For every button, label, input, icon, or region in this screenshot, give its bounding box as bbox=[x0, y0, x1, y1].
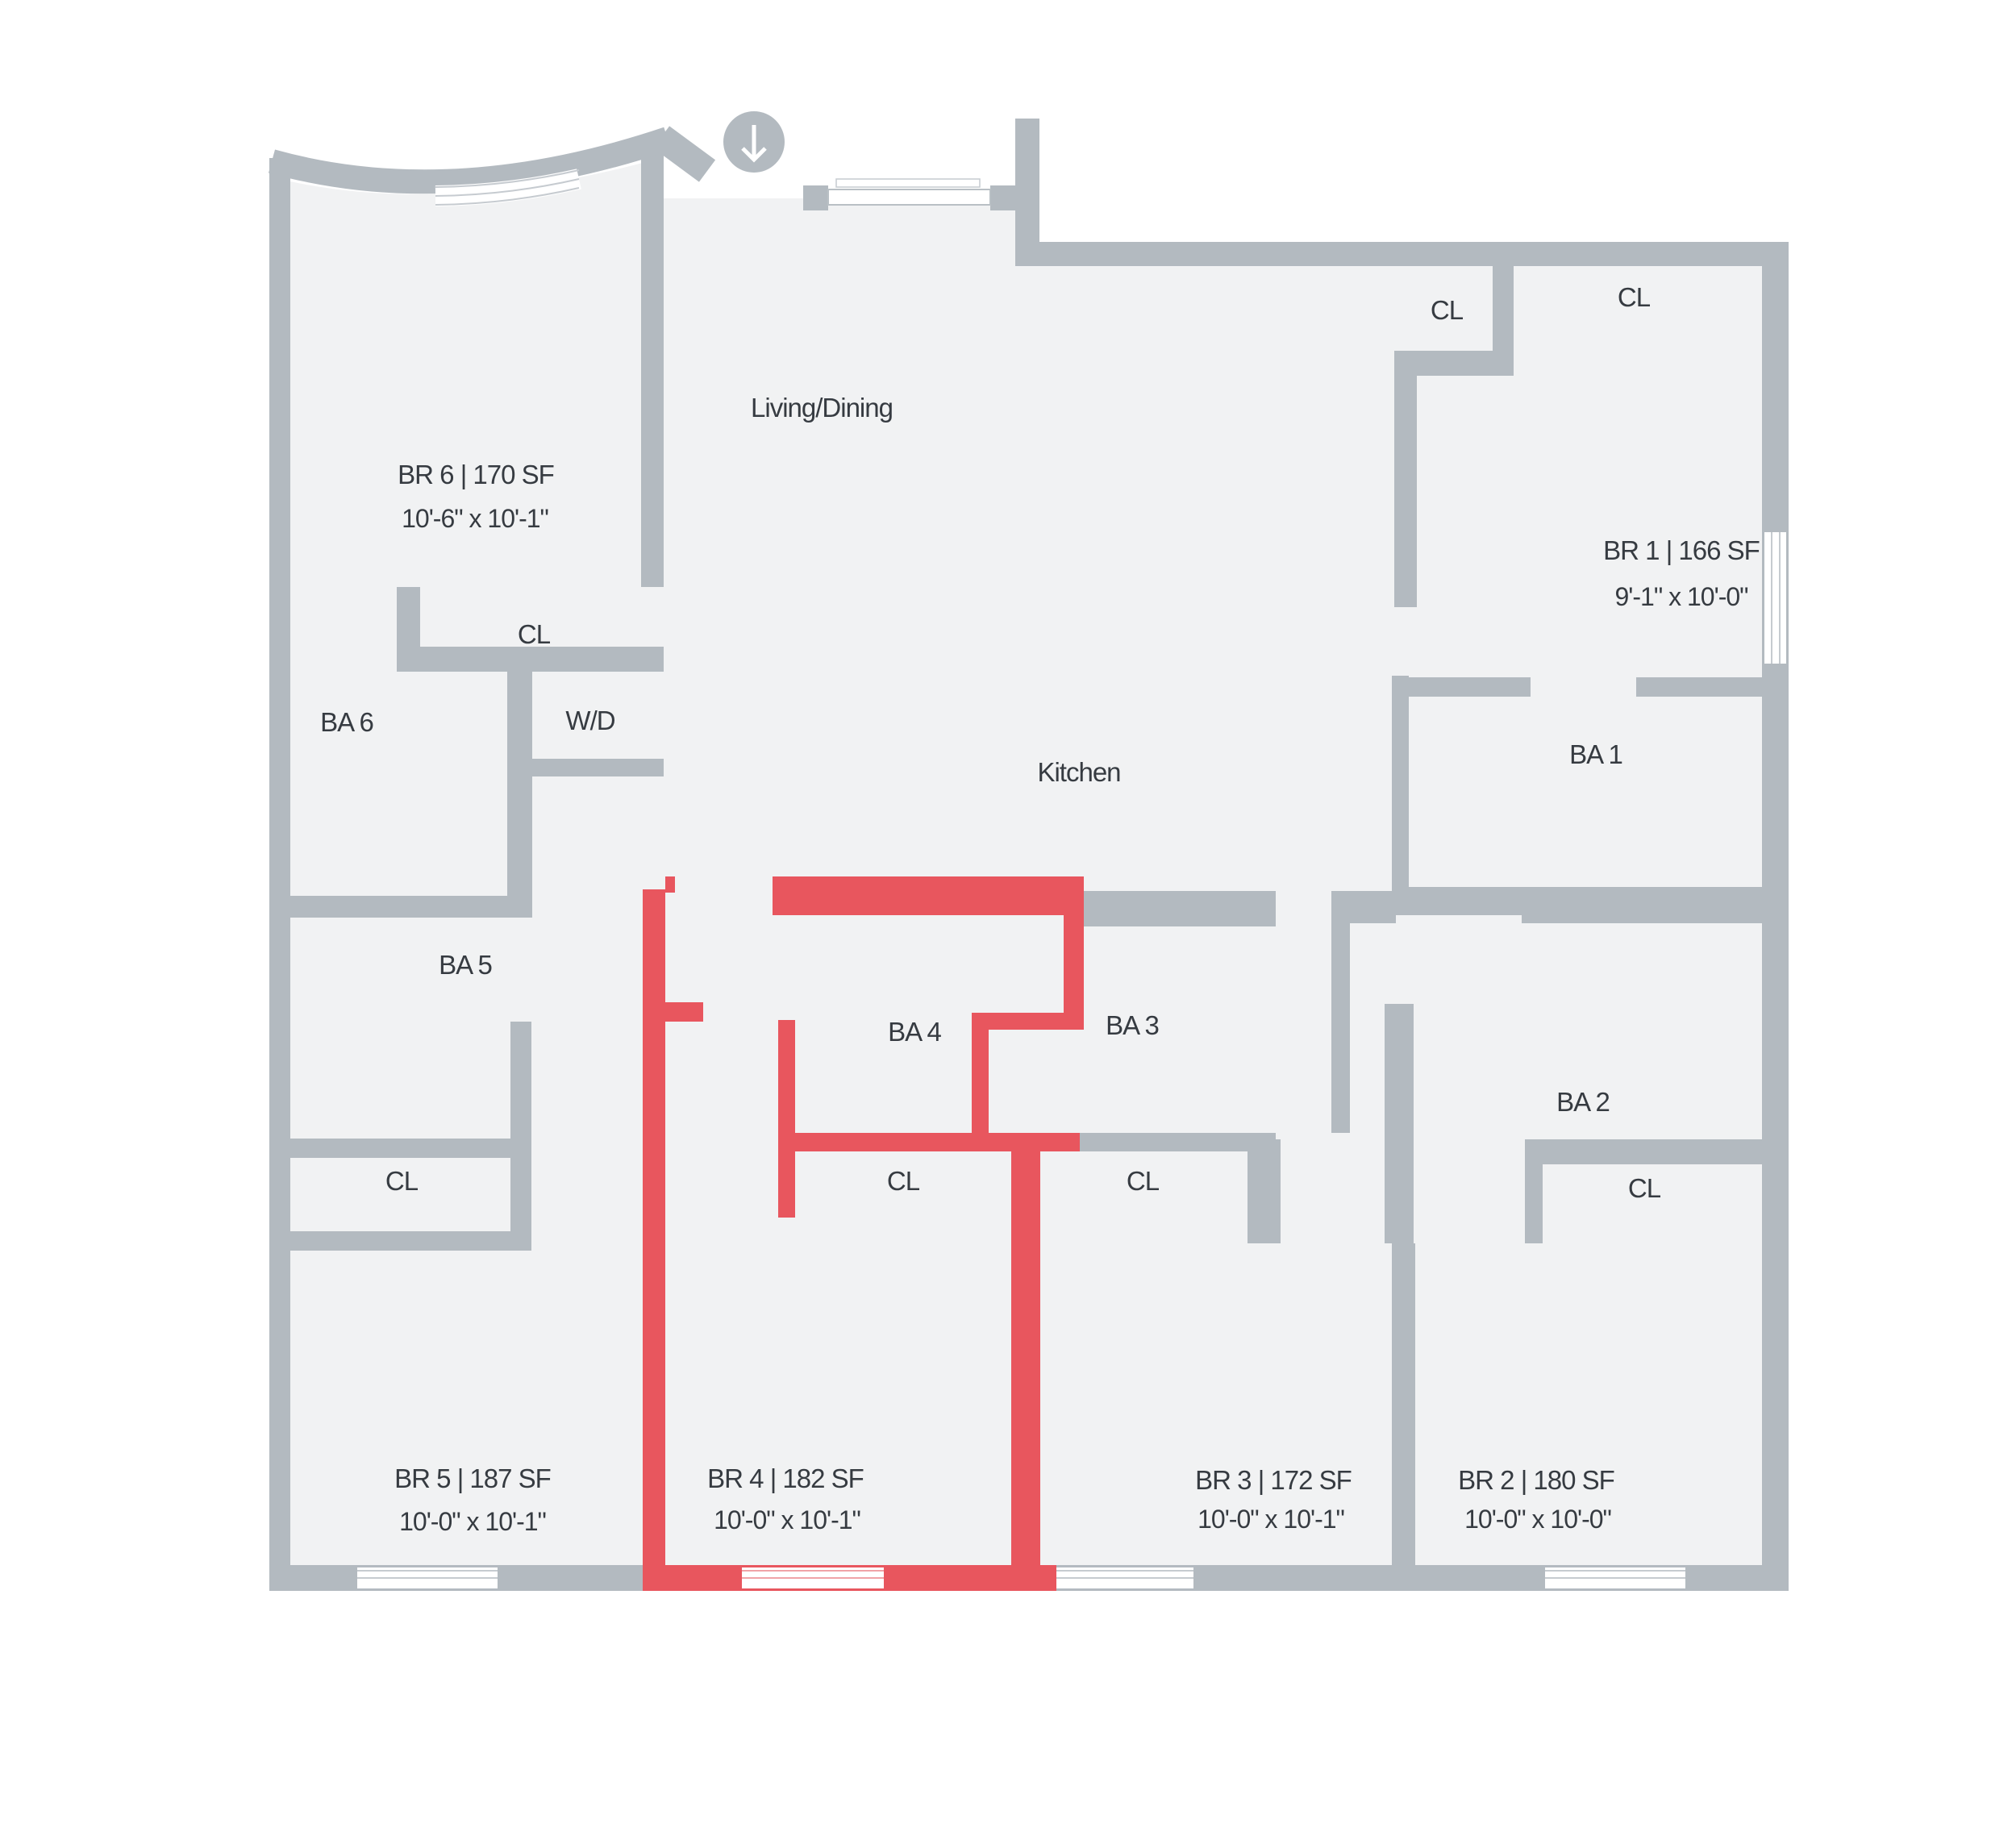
svg-text:BR 5 | 187 SF: BR 5 | 187 SF bbox=[394, 1463, 551, 1493]
svg-text:10'-0" x 10'-1": 10'-0" x 10'-1" bbox=[1198, 1505, 1344, 1534]
svg-text:CL: CL bbox=[1431, 295, 1464, 325]
svg-text:BA 3: BA 3 bbox=[1106, 1010, 1159, 1040]
svg-text:CL: CL bbox=[1628, 1173, 1661, 1203]
svg-text:BR 4 | 182 SF: BR 4 | 182 SF bbox=[707, 1463, 864, 1493]
svg-text:CL: CL bbox=[518, 619, 551, 649]
svg-text:BR 6 | 170 SF: BR 6 | 170 SF bbox=[398, 460, 554, 489]
svg-text:10'-0" x 10'-1": 10'-0" x 10'-1" bbox=[399, 1507, 546, 1536]
svg-text:BR 1 | 166 SF: BR 1 | 166 SF bbox=[1603, 535, 1760, 565]
svg-text:BA 4: BA 4 bbox=[888, 1017, 941, 1047]
svg-text:CL: CL bbox=[887, 1166, 920, 1196]
svg-text:10'-0" x 10'-0": 10'-0" x 10'-0" bbox=[1464, 1505, 1611, 1534]
svg-text:Kitchen: Kitchen bbox=[1037, 757, 1120, 787]
svg-text:CL: CL bbox=[1618, 282, 1651, 312]
svg-text:CL: CL bbox=[1127, 1166, 1160, 1196]
svg-text:Living/Dining: Living/Dining bbox=[751, 393, 893, 423]
svg-text:BA 5: BA 5 bbox=[439, 950, 492, 980]
svg-text:BA 6: BA 6 bbox=[320, 707, 373, 737]
svg-text:BR 2 | 180 SF: BR 2 | 180 SF bbox=[1458, 1465, 1614, 1495]
svg-text:10'-0" x 10'-1": 10'-0" x 10'-1" bbox=[714, 1505, 860, 1534]
svg-text:BA 2: BA 2 bbox=[1556, 1087, 1610, 1117]
svg-text:9'-1" x 10'-0": 9'-1" x 10'-0" bbox=[1614, 582, 1747, 611]
svg-text:10'-6" x 10'-1": 10'-6" x 10'-1" bbox=[402, 504, 548, 533]
svg-text:CL: CL bbox=[385, 1166, 419, 1196]
svg-text:BR 3 | 172 SF: BR 3 | 172 SF bbox=[1195, 1465, 1352, 1495]
svg-text:BA 1: BA 1 bbox=[1569, 739, 1622, 769]
svg-text:W/D: W/D bbox=[565, 706, 614, 735]
